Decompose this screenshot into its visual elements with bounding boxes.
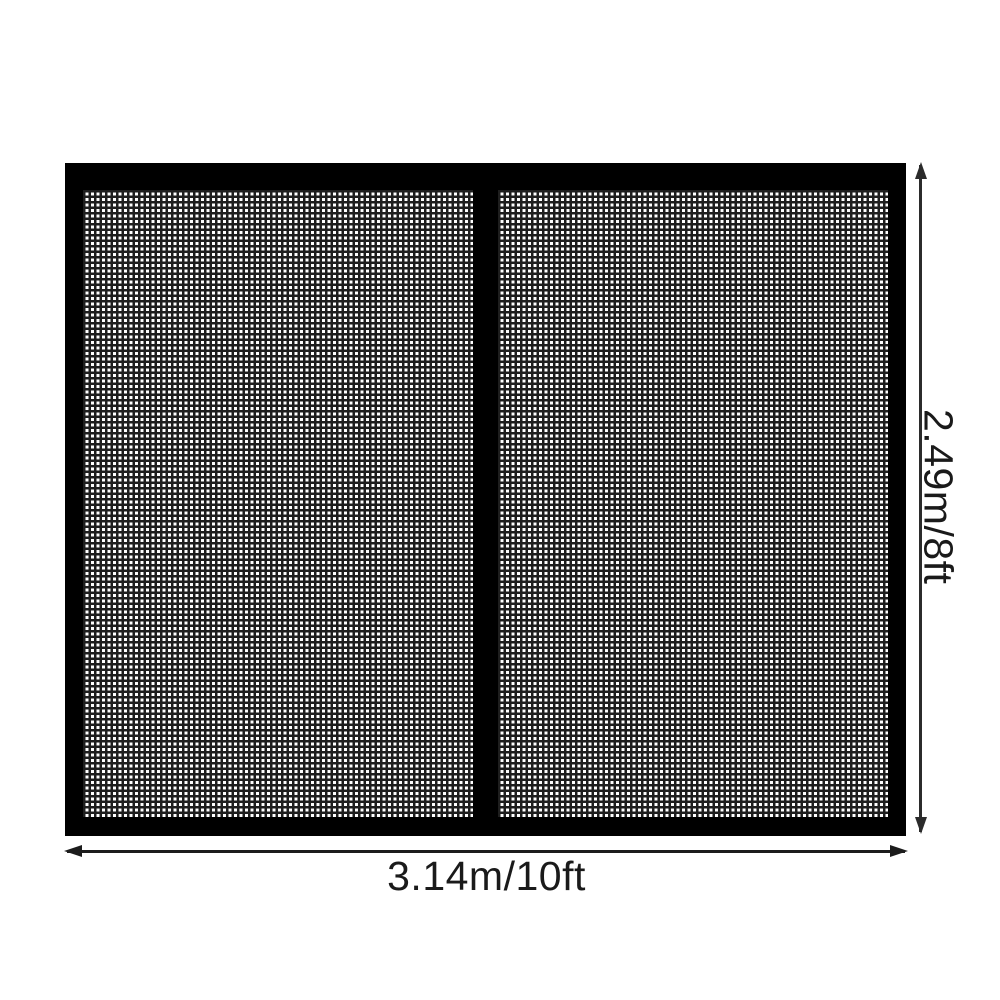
mesh-panel-left [83,190,473,817]
product-dimension-diagram: 2.49m/8ft 3.14m/10ft [0,0,1000,1000]
center-divider-bar [473,190,498,817]
screen-frame [65,163,906,836]
width-dimension-label: 3.14m/10ft [65,853,908,900]
mesh-panel-right [498,190,888,817]
height-dimension-label: 2.49m/8ft [915,409,962,584]
height-dimension-label-box: 2.49m/8ft [912,163,964,830]
